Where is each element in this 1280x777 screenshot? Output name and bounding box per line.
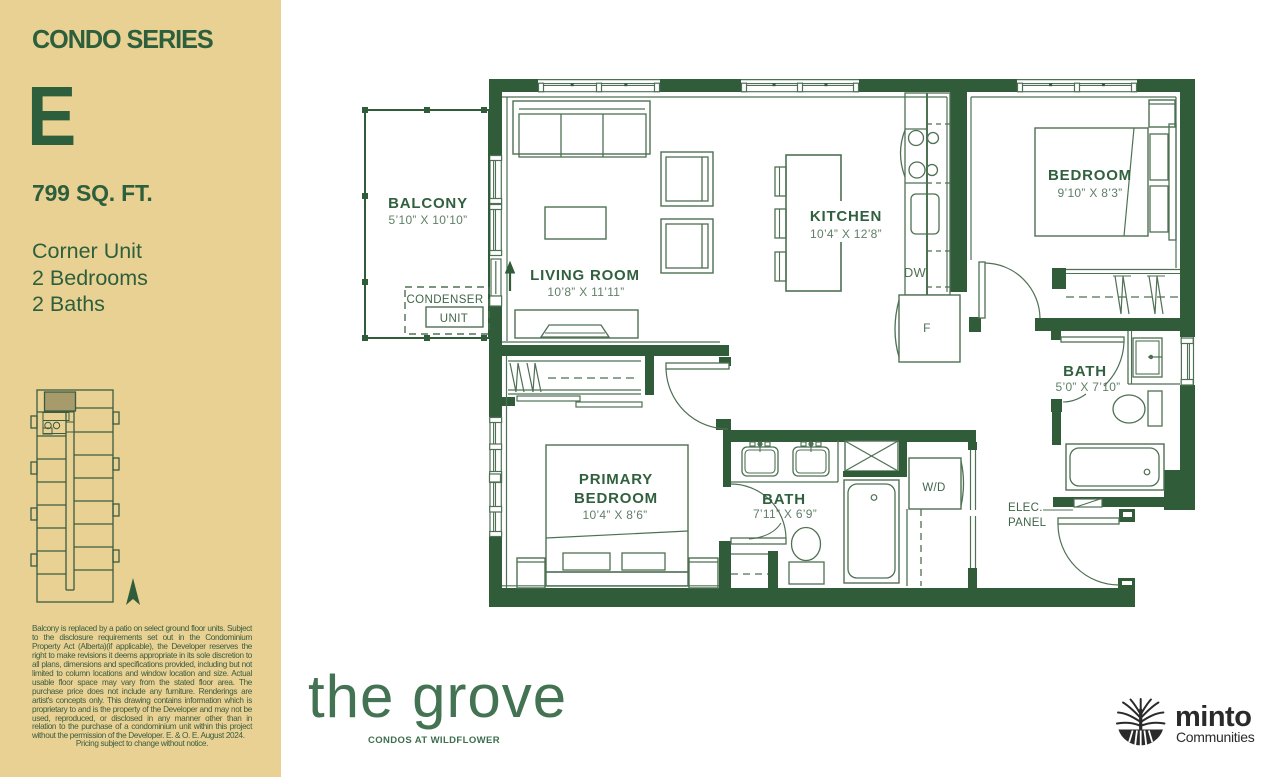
svg-text:PRIMARY: PRIMARY <box>579 471 653 488</box>
svg-text:PANEL: PANEL <box>1008 517 1047 529</box>
svg-text:5’0” X 7’10”: 5’0” X 7’10” <box>1056 380 1121 394</box>
svg-text:10’4” X 12’8”: 10’4” X 12’8” <box>810 227 882 241</box>
svg-text:W/D: W/D <box>922 482 945 494</box>
svg-text:BEDROOM: BEDROOM <box>574 490 658 507</box>
svg-text:BALCONY: BALCONY <box>388 195 468 212</box>
svg-text:10’8” X 11’11”: 10’8” X 11’11” <box>547 285 624 299</box>
svg-text:UNIT: UNIT <box>440 313 468 325</box>
svg-text:7’11” X 6’9”: 7’11” X 6’9” <box>753 507 817 521</box>
svg-text:BATH: BATH <box>762 491 806 508</box>
svg-text:BATH: BATH <box>1063 363 1107 380</box>
svg-text:DW: DW <box>904 265 927 280</box>
svg-text:CONDENSER: CONDENSER <box>406 294 483 306</box>
svg-text:5’10” X 10’10”: 5’10” X 10’10” <box>389 213 468 227</box>
svg-text:KITCHEN: KITCHEN <box>810 208 882 225</box>
svg-text:BEDROOM: BEDROOM <box>1048 167 1132 184</box>
svg-text:ELEC.: ELEC. <box>1008 502 1043 514</box>
svg-text:10’4” X 8’6”: 10’4” X 8’6” <box>583 508 648 522</box>
svg-text:F: F <box>923 321 931 335</box>
svg-text:LIVING ROOM: LIVING ROOM <box>530 267 640 284</box>
svg-text:9’10” X 8’3”: 9’10” X 8’3” <box>1058 186 1123 200</box>
